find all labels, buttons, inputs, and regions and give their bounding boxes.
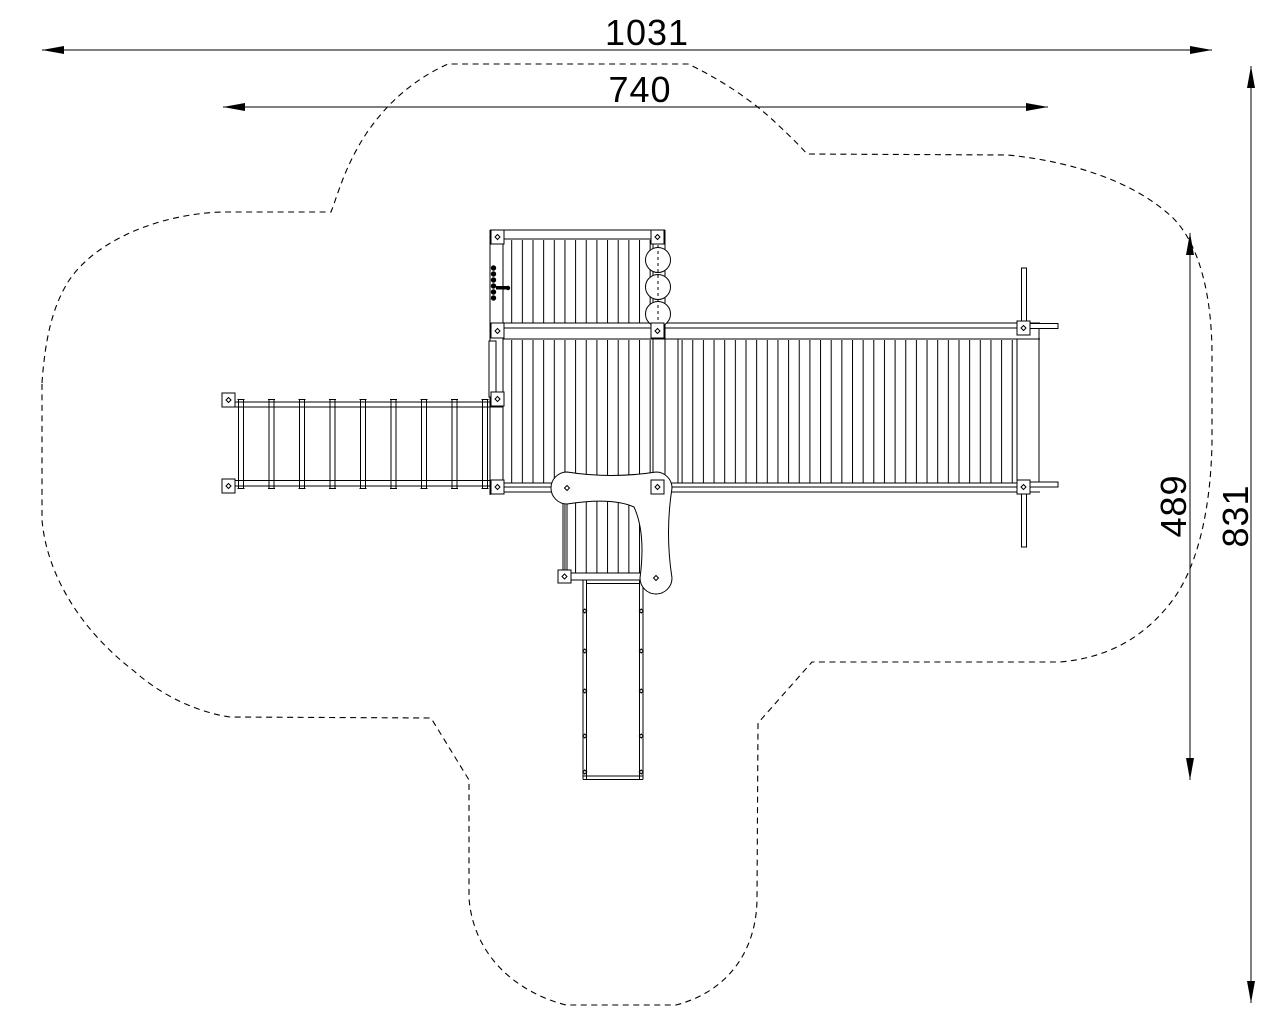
monkey-bar-bridge	[230, 400, 503, 489]
dim-label-inner-height: 489	[1153, 474, 1194, 537]
bridge-rungs	[238, 400, 489, 489]
tower-side-panel	[489, 341, 496, 397]
dimension-height-inner: 489	[1153, 233, 1194, 780]
drawing-sheet: 1031 740 489 831	[0, 0, 1280, 1024]
dim-label-inner-width: 740	[608, 69, 671, 110]
dimension-width-inner: 740	[223, 69, 1048, 111]
deck-planks	[504, 240, 1017, 573]
dimension-width-total: 1031	[42, 12, 1212, 54]
dimension-height-total: 831	[1215, 66, 1256, 1003]
slide-rails	[583, 580, 643, 780]
slide	[583, 580, 643, 780]
tower-deck-upper-planks	[504, 240, 653, 323]
tower-deck-lower-planks	[504, 340, 653, 483]
bridge-rails	[230, 402, 503, 486]
playground-structure	[222, 230, 1058, 780]
support-bars	[1022, 268, 1059, 547]
playground-top-view-drawing: 1031 740 489 831	[0, 0, 1280, 1024]
slide-fixing-markers	[583, 609, 643, 774]
dim-label-total-width: 1031	[605, 12, 689, 53]
right-deck-planks	[678, 340, 1017, 483]
dim-label-total-height: 831	[1215, 484, 1256, 547]
grip-stones	[646, 245, 671, 330]
